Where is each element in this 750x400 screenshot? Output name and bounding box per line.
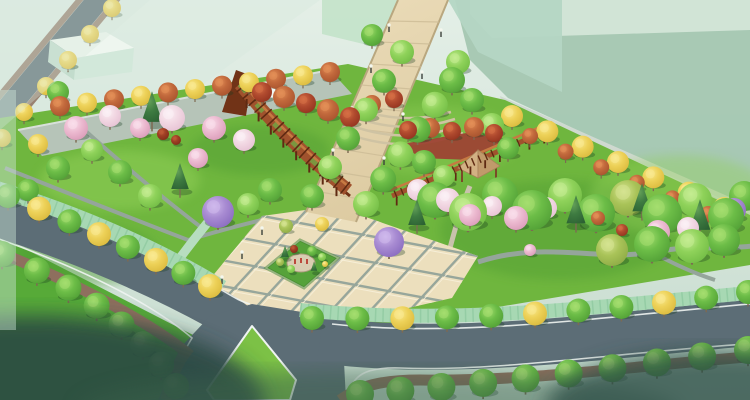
park-plan-scene <box>0 0 750 400</box>
landscape-render <box>0 0 750 400</box>
left-edge-haze <box>0 90 16 330</box>
